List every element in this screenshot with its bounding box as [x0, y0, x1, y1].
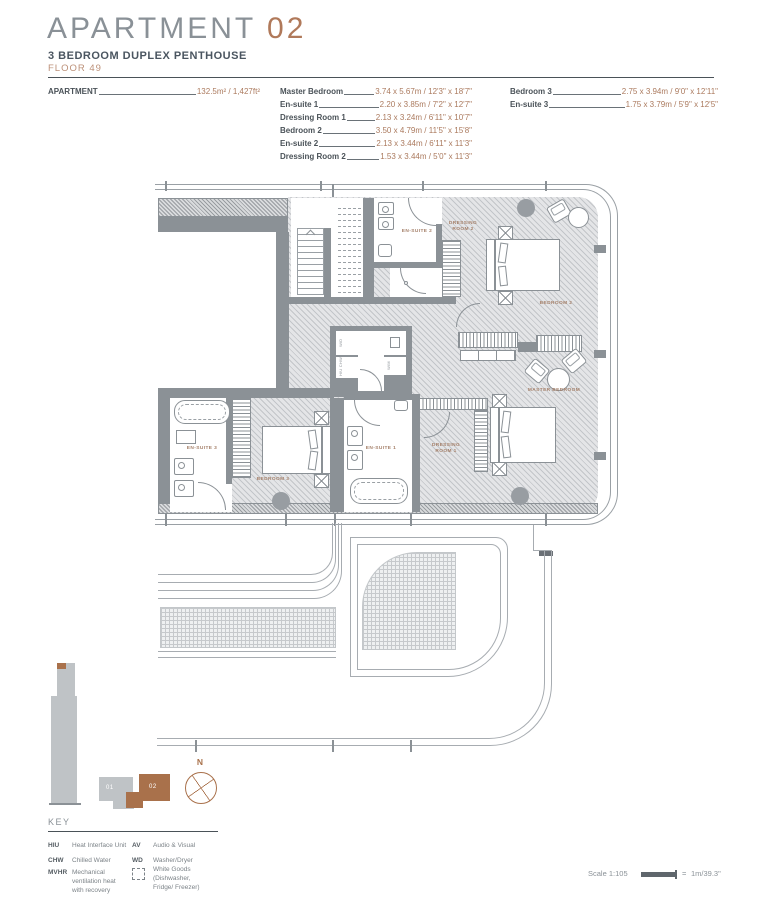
key-desc: White Goods (Dishwasher, Fridge/ Freezer…	[153, 866, 201, 892]
column-icon	[517, 199, 535, 217]
wardrobe-icon	[232, 398, 251, 478]
floor-label: FLOOR 49	[48, 63, 102, 74]
door-knob-icon	[404, 281, 408, 285]
tower-silhouette-base	[51, 696, 77, 803]
shelf-icon	[176, 430, 196, 444]
room-label-bedroom2: BEDROOM 2	[530, 301, 582, 307]
dim-tick	[195, 740, 197, 752]
key-abbr: MVHR	[48, 869, 67, 876]
bedside-table-icon	[314, 411, 329, 425]
key-desc: Washer/Dryer	[153, 857, 213, 866]
terrace-step-line	[533, 525, 552, 551]
dimensions-col2: Master Bedroom3.74 x 5.67m / 12'3" x 18'…	[280, 83, 472, 161]
basin-icon	[378, 217, 394, 230]
stairs-upper-flight-dashed	[336, 203, 361, 295]
dim-row: En-suite 22.13 x 3.44m / 6'11" x 11'3"	[280, 135, 472, 148]
dim-row: Dressing Room 12.13 x 3.24m / 6'11" x 10…	[280, 109, 472, 122]
drawer-unit-icon	[460, 350, 516, 361]
dim-row: En-suite 12.20 x 3.85m / 7'2" x 12'7"	[280, 96, 472, 109]
dim-row: En-suite 31.75 x 3.79m / 5'9" x 12'5"	[510, 96, 718, 109]
stair-divider-wall	[324, 228, 331, 297]
page-title-number: 02	[267, 12, 306, 45]
dim-tick	[320, 181, 322, 191]
dim-row-apartment: APARTMENT 132.5m² / 1,427ft²	[48, 83, 260, 96]
wardrobe-icon	[458, 332, 518, 348]
key-desc: Mechanical ventilation heat with recover…	[72, 869, 126, 895]
key-rule	[48, 831, 218, 832]
wardrobe-icon	[442, 240, 461, 297]
dimensions-col1: APARTMENT 132.5m² / 1,427ft²	[48, 83, 260, 96]
bathtub-icon	[350, 478, 408, 504]
bedside-table-icon	[498, 291, 513, 305]
compass-icon	[185, 772, 217, 804]
dim-row: Master Bedroom3.74 x 5.67m / 12'3" x 18'…	[280, 83, 472, 96]
wall-void-right	[276, 232, 289, 398]
page-subtitle: 3 BEDROOM DUPLEX PENTHOUSE	[48, 50, 247, 62]
wall-wardrobe-link	[518, 342, 536, 352]
dim-tick	[545, 181, 547, 191]
tower-ground-line	[49, 803, 81, 805]
wardrobe-icon	[418, 398, 488, 410]
key-title: KEY	[48, 817, 71, 827]
wall-corridor-top	[288, 297, 456, 304]
dimensions-col3: Bedroom 32.75 x 3.94m / 9'0" x 12'11" En…	[510, 83, 718, 109]
lower-outline-inner	[157, 551, 545, 739]
brochure-page: APARTMENT 02 3 BEDROOM DUPLEX PENTHOUSE …	[0, 0, 762, 909]
wc-icon	[394, 400, 408, 411]
room-label-dressing1: DRESSING ROOM 1	[426, 443, 466, 455]
room-label-bedroom3: BEDROOM 3	[250, 477, 296, 483]
tower-floor-marker	[57, 663, 66, 669]
keyplan-unit2-shape	[126, 792, 143, 808]
wall-ensuite1-right	[412, 398, 420, 512]
utility-label: W/M	[386, 356, 404, 375]
wall-stub	[594, 452, 606, 460]
dim-tick	[422, 181, 424, 191]
scale-bar-tick	[675, 870, 677, 879]
wall-stub	[594, 350, 606, 358]
bathtub-icon	[174, 400, 230, 424]
wall-top-left	[158, 217, 288, 232]
key-desc: Heat Interface Unit	[72, 842, 130, 851]
stairwell-right-wall	[363, 198, 374, 297]
bedside-table-icon	[492, 394, 507, 408]
bed-headboard-icon	[486, 239, 495, 291]
dim-row: Dressing Room 21.53 x 3.44m / 5'0" x 11'…	[280, 148, 472, 161]
wall-wing-top	[158, 388, 334, 398]
room-label-ensuite2: EN-SUITE 2	[394, 229, 440, 235]
utility-label: HIU CHW	[338, 356, 356, 378]
exterior-wall-hatch-top	[158, 198, 288, 217]
keyplan-unit1-label: 01	[106, 785, 114, 791]
bed-headboard-icon	[490, 407, 499, 463]
room-label-ensuite3: EN-SUITE 3	[180, 446, 224, 452]
basin-icon	[347, 426, 363, 446]
keyplan-unit2-label: 02	[149, 784, 157, 790]
dim-tick	[410, 740, 412, 752]
dim-tick	[165, 181, 167, 191]
header-rule	[48, 77, 714, 78]
key-abbr: WD	[132, 857, 143, 864]
key-abbr: HIU	[48, 842, 59, 849]
utility-label: W/D	[338, 332, 356, 354]
appliance-icon	[390, 337, 400, 348]
key-desc: Chilled Water	[72, 857, 130, 866]
wc-icon	[378, 244, 392, 257]
page-title-main: APARTMENT	[47, 12, 256, 45]
room-label-ensuite1: EN-SUITE 1	[358, 446, 404, 452]
scale-label: Scale 1:105	[588, 869, 628, 878]
bedside-table-icon	[498, 226, 513, 240]
basin-icon	[174, 458, 194, 475]
wall-left-exterior	[158, 398, 170, 512]
basin-icon	[378, 202, 394, 215]
dim-tick	[332, 740, 334, 752]
bed-headboard-icon	[322, 426, 331, 474]
bedside-table-icon	[492, 462, 507, 476]
north-label: N	[192, 757, 208, 767]
scale-value: 1m/39.3"	[691, 869, 721, 878]
key-abbr: AV	[132, 842, 141, 849]
room-label-dressing2: DRESSING ROOM 2	[444, 221, 482, 233]
room-label-master: MASTER BEDROOM	[519, 388, 589, 394]
round-table-icon	[568, 207, 589, 228]
page-title: APARTMENT 02	[47, 12, 306, 46]
dim-row: Bedroom 23.50 x 4.79m / 11'5" x 15'8"	[280, 122, 472, 135]
scale-bar	[641, 872, 675, 877]
wardrobe-icon	[474, 410, 488, 472]
white-goods-icon	[132, 868, 145, 880]
scale-equals: =	[682, 869, 686, 878]
dim-tick	[410, 513, 412, 526]
bedside-table-icon	[314, 474, 329, 488]
basin-icon	[347, 450, 363, 470]
key-abbr: CHW	[48, 857, 64, 864]
wall-bedroom3-ensuite1	[330, 398, 344, 512]
column-icon	[511, 487, 529, 505]
basin-icon	[174, 480, 194, 497]
column-icon	[272, 492, 290, 510]
wall-stub	[594, 245, 606, 253]
dim-tick	[332, 184, 334, 198]
key-desc: Audio & Visual	[153, 842, 213, 851]
dim-row: Bedroom 32.75 x 3.94m / 9'0" x 12'11"	[510, 83, 718, 96]
